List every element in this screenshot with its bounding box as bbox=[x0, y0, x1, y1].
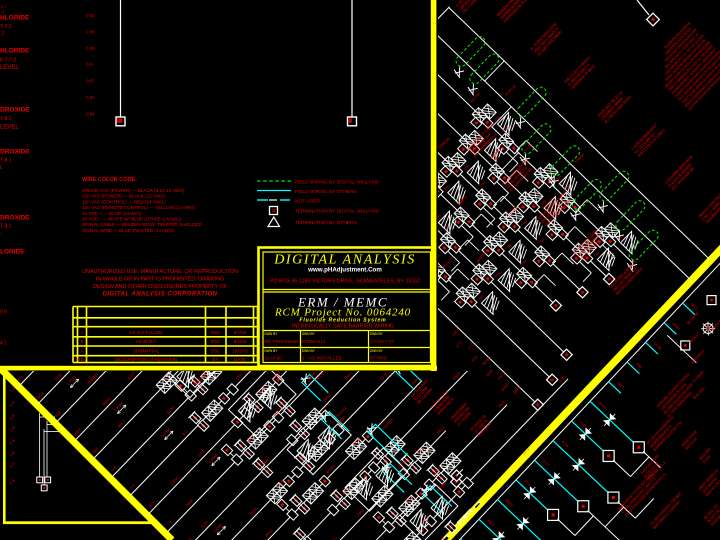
svg-text:T-8.1: T-8.1 bbox=[0, 157, 12, 163]
svg-text:1: 1 bbox=[81, 330, 84, 335]
svg-text:-0 04: -0 04 bbox=[85, 111, 95, 116]
svg-text:-0 0-: -0 0- bbox=[85, 62, 94, 67]
svg-text:NOT USED: NOT USED bbox=[295, 199, 320, 205]
svg-text:DESCRIPTION of REVISION: DESCRIPTION of REVISION bbox=[115, 357, 178, 363]
svg-text:UNAUTHORIZED USE, MANUFACTURE,: UNAUTHORIZED USE, MANUFACTURE, OR REPROD… bbox=[82, 269, 238, 275]
svg-text:DWN BY: DWN BY bbox=[265, 332, 279, 336]
svg-text:TERMINATION BY OTHERS: TERMINATION BY OTHERS bbox=[295, 220, 357, 226]
svg-text:WIRE COLOR CODE:: WIRE COLOR CODE: bbox=[82, 177, 137, 183]
svg-text:208/240 VAC (POWER) --- BLACK: 208/240 VAC (POWER) --- BLACK (8,10,12 A… bbox=[82, 188, 185, 193]
svg-text:DIGITAL ANALYSIS: DIGITAL ANALYSIS bbox=[273, 253, 416, 268]
svg-text:DATE: DATE bbox=[234, 357, 246, 362]
svg-text:DROXIDE: DROXIDE bbox=[0, 148, 30, 155]
svg-text:DWN BY: DWN BY bbox=[302, 349, 316, 353]
svg-text:DWN BY: DWN BY bbox=[265, 349, 279, 353]
svg-text:-0 02: -0 02 bbox=[85, 13, 95, 18]
svg-text:077609: 077609 bbox=[371, 356, 387, 362]
svg-text:120 VAC (REMOTE CONTROL) --- Y: 120 VAC (REMOTE CONTROL) --- YELLOW (14 … bbox=[82, 205, 196, 210]
svg-text:REV: REV bbox=[77, 357, 87, 362]
svg-text:-0 08: -0 08 bbox=[85, 29, 95, 34]
svg-text:SIGNAL WIRE --- BLUE TWISTED (: SIGNAL WIRE --- BLUE TWISTED (14 AWG) bbox=[82, 228, 175, 233]
svg-text:-7: -7 bbox=[0, 31, 5, 37]
svg-text:HLORIDE: HLORIDE bbox=[0, 14, 30, 21]
svg-text:P2004-012: P2004-012 bbox=[302, 339, 326, 345]
svg-text:-0 02: -0 02 bbox=[85, 95, 95, 100]
svg-text:DWN BY: DWN BY bbox=[302, 332, 316, 336]
svg-text:RE PINKOWSKI: RE PINKOWSKI bbox=[265, 339, 300, 345]
svg-text:AS BUILT: AS BUILT bbox=[136, 339, 157, 345]
svg-text:LEVEL: LEVEL bbox=[0, 124, 19, 130]
svg-text:FIELD WIRING BY DIGITAL ANALYS: FIELD WIRING BY DIGITAL ANALYSIS bbox=[295, 180, 379, 186]
svg-text:T-7.1: T-7.1 bbox=[0, 24, 12, 30]
svg-text:DWN BY: DWN BY bbox=[370, 332, 384, 336]
svg-text:DROXIDE: DROXIDE bbox=[0, 214, 30, 221]
svg-text:LEVEL: LEVEL bbox=[0, 65, 19, 71]
svg-text:-0 09: -0 09 bbox=[85, 46, 95, 51]
svg-text:INTRINSICALLY SAFE BARRIER WIR: INTRINSICALLY SAFE BARRIER WIRING bbox=[292, 324, 394, 330]
svg-text:DSC: DSC bbox=[211, 349, 221, 354]
svg-text:10/1/03: 10/1/03 bbox=[232, 349, 248, 354]
svg-text:4 1: 4 1 bbox=[0, 340, 7, 346]
svg-text:T-8.1: T-8.1 bbox=[0, 116, 12, 122]
svg-text:AS INSTALLED: AS INSTALLED bbox=[129, 330, 163, 336]
svg-text:K 7-7.2: K 7-7.2 bbox=[0, 57, 16, 63]
svg-text:19 of 50: 19 of 50 bbox=[265, 356, 283, 362]
svg-text:120 VAC (CONTROL) --- RED (14: 120 VAC (CONTROL) --- RED (14 AWG) bbox=[82, 199, 165, 204]
svg-text:17-OCT-07: 17-OCT-07 bbox=[371, 339, 395, 345]
svg-text:DSC: DSC bbox=[211, 339, 221, 344]
svg-text:120 VAC (POWER) --- BLACK (12: 120 VAC (POWER) --- BLACK (12 AWG) bbox=[82, 194, 166, 199]
svg-text:DROXIDE: DROXIDE bbox=[0, 106, 30, 113]
svg-text:L: L bbox=[0, 165, 3, 171]
svg-text:DIGITAL ANALYSIS CORPORATION: DIGITAL ANALYSIS CORPORATION bbox=[102, 292, 217, 298]
svg-text:6/1/04: 6/1/04 bbox=[234, 330, 247, 335]
svg-text:www.pHAdjustment.Com: www.pHAdjustment.Com bbox=[307, 267, 382, 274]
svg-text:IN WHOLE OR IN PART IS PROHIBI: IN WHOLE OR IN PART IS PROHIBITED. DRAWI… bbox=[96, 277, 224, 283]
svg-text:T-8.1: T-8.1 bbox=[0, 223, 12, 229]
svg-text:BY: BY bbox=[212, 357, 218, 362]
svg-text:TERMINATION BY DIGITAL ANALYSI: TERMINATION BY DIGITAL ANALYSIS bbox=[295, 209, 379, 215]
svg-text:24 VDC - --- WHITE W/ BLUE STR: 24 VDC - --- WHITE W/ BLUE STRIPE (14AWG… bbox=[82, 217, 182, 222]
svg-text:DESIGN AND OTHER DISCLOSURES P: DESIGN AND OTHER DISCLOSURES PROPERTY OF bbox=[93, 284, 227, 290]
svg-text:HLORIDE: HLORIDE bbox=[0, 47, 30, 54]
svg-text:SUBMITTAL: SUBMITTAL bbox=[133, 349, 160, 355]
svg-text:LORIDE: LORIDE bbox=[0, 248, 25, 255]
svg-text:0: 0 bbox=[81, 339, 84, 344]
svg-text:PO BOX 95 1189 VICTORS DRIVE: PO BOX 95 1189 VICTORS DRIVE, SKANEATELE… bbox=[270, 279, 420, 285]
svg-text:6/1/04: 6/1/04 bbox=[234, 339, 247, 344]
svg-text:DSC: DSC bbox=[211, 330, 221, 335]
svg-text:24 VDC + --- BLUE (14AWG): 24 VDC + --- BLUE (14AWG) bbox=[82, 211, 142, 216]
svg-text:-0 07: -0 07 bbox=[85, 79, 95, 84]
svg-text:DWN BY: DWN BY bbox=[370, 349, 384, 353]
svg-text:1 - AS INSTALLED: 1 - AS INSTALLED bbox=[302, 356, 343, 362]
svg-text:0 8: 0 8 bbox=[0, 309, 7, 315]
svg-text:SIGNAL CABLE --- BELDEN #8760:: SIGNAL CABLE --- BELDEN #8760: TWISTED S… bbox=[82, 222, 203, 227]
svg-text:FIELD WIRING BY OTHERS: FIELD WIRING BY OTHERS bbox=[295, 189, 357, 195]
